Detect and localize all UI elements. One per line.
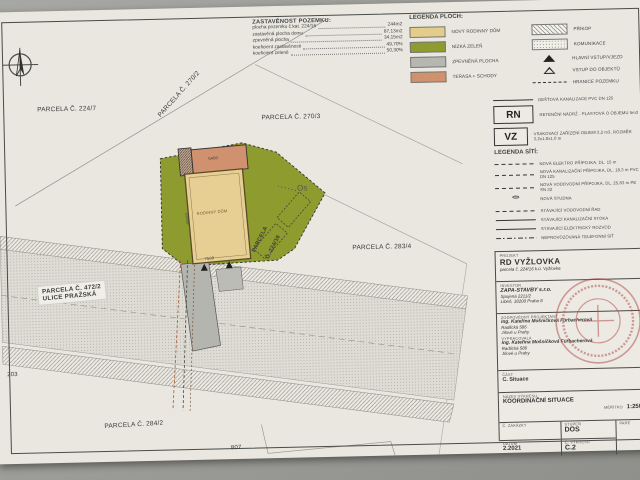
- legend-item: NOVÁ ELEKTRO PŘÍPOJKA, DL. 15 m: [494, 158, 640, 167]
- legend-item: RNRETENČNÍ NÁDRŽ - PLASTOVÁ O OBJEMU 5m3: [493, 103, 639, 124]
- parcel-label: PARCELA Č. 270/3: [261, 113, 320, 121]
- legend-item: NOVÁ VODOVODNÍ PŘÍPOJKA, DL. 25,83 m PE …: [495, 180, 640, 193]
- swatch-ditch: [531, 23, 567, 35]
- order-cell: Č. ZAKÁZKY: [499, 422, 560, 441]
- dimension-label: 7500: [204, 255, 214, 261]
- os-marker: Os: [297, 183, 308, 192]
- swatch-low-green: [410, 41, 446, 53]
- drawing-name-row: NÁZEV VÝKRESU KOORDINAČNÍ SITUACE MĚŘÍTK…: [499, 390, 640, 423]
- dimension-label: 11500: [185, 212, 191, 224]
- legend-item: NOVÁ KANALIZAČNÍ PŘÍPOJKA, DL. 18,3 m PV…: [495, 167, 640, 180]
- coverage-stats-table: ZASTAVĚNOST POZEMKU: plocha pozemku č.ka…: [252, 16, 403, 58]
- drawing-no-cell: Č. VÝKRESUC.2: [562, 438, 616, 456]
- swatch-paved: [410, 56, 446, 68]
- drawing-sheet: ZASTAVĚNOST POZEMKU: plocha pozemku č.ka…: [0, 0, 640, 464]
- stage-cell: STUPEŇDOS: [561, 420, 615, 439]
- part-row: ČÁST C. Situace: [498, 368, 640, 393]
- legend-item: STÁVAJÍCÍ VODOVODNÍ ŘAD: [496, 205, 640, 214]
- authorization-stamp: [551, 274, 640, 368]
- scale-value: 1:250: [627, 404, 640, 410]
- area-legend: LEGENDA PLOCH: NOVÝ RODINNÝ DŮM NÍZKÁ ZE…: [409, 10, 640, 91]
- date-cell: DATUM2.2021: [500, 439, 561, 457]
- swatch-new-house: [409, 26, 445, 38]
- swatch-road: [532, 38, 568, 50]
- legend-item: NOVÁ STUDNA: [495, 193, 640, 202]
- elevation-label: 807: [231, 445, 242, 451]
- swatch-terrace: [410, 71, 446, 83]
- elevation-label: 203: [7, 372, 18, 378]
- rn-box: RN: [493, 105, 533, 124]
- open-triangle-icon: [543, 66, 555, 73]
- parcel-label: PARCELA Č. 283/4: [352, 243, 411, 251]
- legend-item: STÁVAJÍCÍ KANALIZAČNÍ STOKA: [496, 214, 640, 223]
- utilities-legend-title: LEGENDA SÍTÍ:: [494, 147, 640, 156]
- north-arrow-icon: [0, 45, 41, 88]
- dimension-label: 5400: [208, 155, 218, 161]
- legend-item: STÁVAJÍCÍ ELEKTRICKÝ ROZVOD: [496, 223, 640, 232]
- dashed-line-icon: [533, 81, 567, 83]
- copy-cell: PARÉ: [616, 420, 640, 455]
- legend-item: NEPROVOZOVANÁ TELEFONNÍ SÍŤ: [496, 232, 640, 241]
- legend-item: TERASA + SCHODY: [410, 67, 522, 85]
- vz-box: VZ: [494, 127, 528, 146]
- parcel-label: PARCELA Č. 224/7: [37, 105, 96, 113]
- title-block-grid: Č. ZAKÁZKY DATUM2.2021 STUPEŇDOS Č. VÝKR…: [499, 420, 640, 457]
- legend-item: HRANICE POZEMKU: [533, 74, 624, 88]
- legend-item: VZVSAKOVACÍ ZAŘÍZENÍ OBJEM 3,2 m3, ROZMĚ…: [494, 125, 640, 146]
- well-icon: [512, 196, 519, 199]
- filled-triangle-icon: [543, 54, 555, 61]
- utilities-legend: DEŠŤOVÁ KANALIZACE PVC DN 125 RNRETENČNÍ…: [493, 94, 640, 244]
